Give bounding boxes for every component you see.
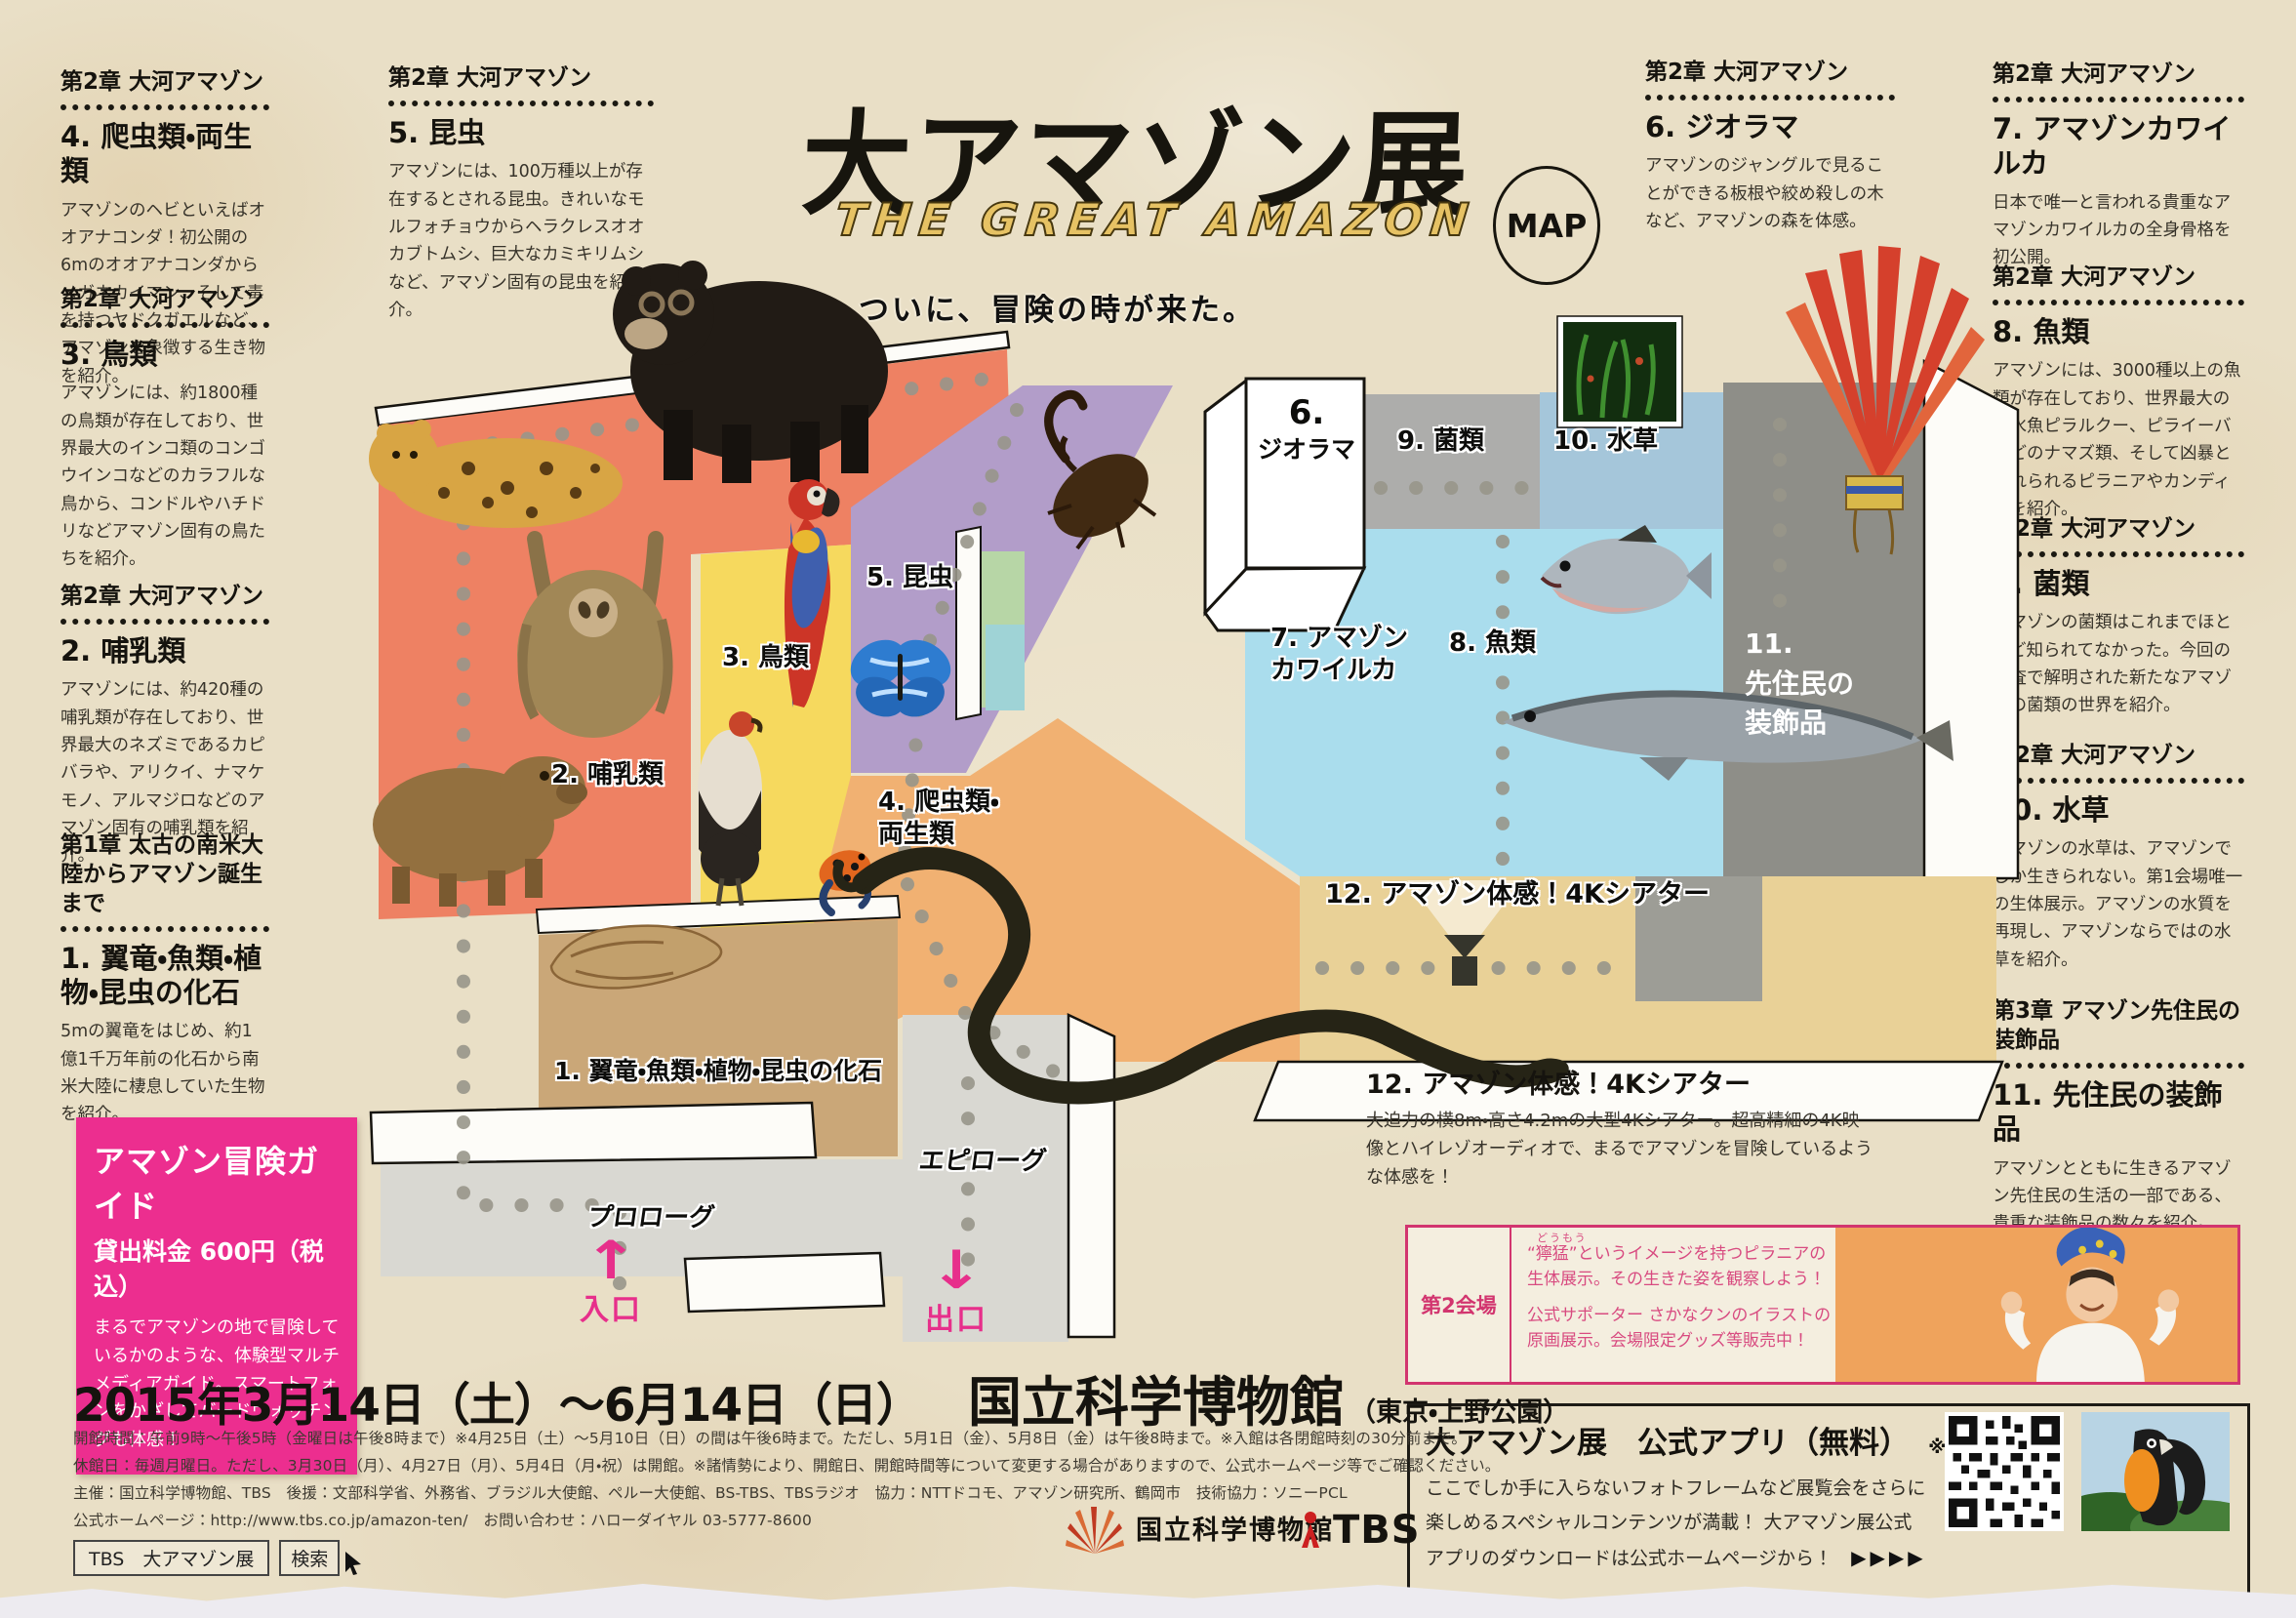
section-heading: 5. 昆虫: [388, 116, 654, 150]
app-body: ここでしか手に入らないフォトフレームなど展覧会をさらに 楽しめるスペシャルコンテ…: [1426, 1472, 1953, 1576]
section-body: アマゾンには、3000種以上の魚類が存在しており、世界最大の淡水魚ピラルクー、ピ…: [1993, 357, 2244, 523]
section-fungi: 第2章 大河アマゾン 9. 菌類 アマゾンの菌類はこれまでほとんど知られてなかっ…: [1993, 515, 2244, 720]
section-fish: 第2章 大河アマゾン 8. 魚類 アマゾンには、3000種以上の魚類が存在してお…: [1993, 263, 2244, 523]
app-arrows-icon: ▶▶▶▶: [1851, 1546, 1927, 1569]
venue-name: 国立科学博物館: [968, 1358, 1344, 1436]
search-mock: TBS 大アマゾン展 検索: [73, 1540, 363, 1576]
map-label-reptiles: 4. 爬虫類・両生類: [878, 787, 999, 850]
section-chapter: 第2章 大河アマゾン: [1993, 61, 2244, 102]
map-label-theater: 12. アマゾン体感！4Kシアター: [1325, 878, 1710, 911]
section-chapter: 第2章 大河アマゾン: [60, 286, 269, 328]
exit-label: 出口: [925, 1295, 987, 1338]
tbs-figure-icon: [1298, 1511, 1323, 1550]
map-label-fish: 8. 魚類: [1449, 627, 1536, 660]
map-label-waterplants: 10. 水草: [1553, 425, 1658, 458]
map-label-fungi: 9. 菌類: [1397, 425, 1484, 458]
guide-title: アマゾン冒険ガイド: [94, 1137, 340, 1227]
map-label-fossils: 1. 翼竜・魚類・植物・昆虫の化石: [554, 1056, 882, 1086]
date-line: 2015年3月14日（土）〜6月14日（日） 国立科学博物館 （東京・上野公園）: [73, 1358, 1569, 1436]
map-label-dolphin: 7. アマゾンカワイルカ: [1270, 623, 1408, 686]
tbs-logo: TBS: [1298, 1508, 1421, 1553]
map-label-birds: 3. 鳥類: [722, 642, 809, 674]
flyer-page: { "header": { "title": "大アマゾン展", "subtit…: [0, 0, 2296, 1618]
section-heading: 10. 水草: [1993, 793, 2244, 828]
exhibition-subtitle: THE GREAT AMAZON: [832, 193, 1478, 246]
section-body: アマゾンには、約1800種の鳥類が存在しており、世界最大のインコ類のコンゴウイン…: [60, 380, 269, 573]
entrance-gate: ↑ 入口: [580, 1237, 642, 1328]
section-mammals: 第2章 大河アマゾン 2. 哺乳類 アマゾンには、約420種の哺乳類が存在してお…: [60, 583, 269, 870]
qr-code-icon: [1945, 1412, 2064, 1531]
tagline: ついに、冒険の時が来た。: [859, 285, 1256, 329]
kahaku-logo: 国立科学博物館: [1064, 1495, 1334, 1559]
section-chapter: 第2章 大河アマゾン: [1645, 59, 1895, 101]
map-label-epilogue: エピローグ: [917, 1146, 1049, 1178]
kahaku-rays-icon: [1064, 1495, 1126, 1559]
section-river-dolphin: 第2章 大河アマゾン 7. アマゾンカワイルカ 日本で唯一と言われる貴重なアマゾ…: [1993, 61, 2244, 272]
section-chapter: 第2章 大河アマゾン: [60, 68, 269, 110]
guide-price: 貸出料金 600円（税込）: [94, 1233, 340, 1303]
section-heading: 6. ジオラマ: [1645, 110, 1895, 144]
map-labels: 2. 哺乳類 3. 鳥類 5. 昆虫 4. 爬虫類・両生類 1. 翼竜・魚類・植…: [371, 332, 2020, 1376]
section-birds: 第2章 大河アマゾン 3. 鳥類 アマゾンには、約1800種の鳥類が存在しており…: [60, 286, 269, 574]
map-label-insects: 5. 昆虫: [866, 562, 953, 594]
website-line: 公式ホームページ：http://www.tbs.co.jp/amazon-ten…: [73, 1509, 812, 1530]
entrance-label: 入口: [580, 1285, 642, 1328]
section-diorama: 第2章 大河アマゾン 6. ジオラマ アマゾンのジャングルで見ることができる板根…: [1645, 59, 1895, 235]
section-body: 5mの翼竜をはじめ、約1億1千万年前の化石から南米大陸に棲息していた生物を紹介。: [60, 1018, 269, 1128]
tbs-logo-text: TBS: [1333, 1508, 1421, 1553]
map-label-mammals: 2. 哺乳類: [551, 759, 664, 791]
map-label-diorama: 6.ジオラマ: [1252, 392, 1361, 465]
section-heading: 11. 先住民の装飾品: [1993, 1078, 2244, 1148]
map-badge: MAP: [1493, 166, 1600, 285]
hours-line: 開館時間：午前9時〜午後5時（金曜日は午後8時まで）※4月25日（土）〜5月10…: [73, 1427, 1467, 1448]
section-fossils: 第1章 太古の南米大陸からアマゾン誕生まで 1. 翼竜・魚類・植物・昆虫の化石 …: [60, 831, 269, 1129]
section-body: アマゾンのジャングルで見ることができる板根や絞め殺しの木など、アマゾンの森を体感…: [1645, 152, 1895, 235]
section-chapter: 第2章 大河アマゾン: [1993, 742, 2244, 784]
closed-line: 休館日：毎週月曜日。ただし、3月30日（月）、4月27日（月）、5月4日（月・祝…: [73, 1454, 1500, 1476]
section-theater: 12. アマゾン体感！4Kシアター 大迫力の横8m・高さ4.2mの大型4Kシアタ…: [1366, 1070, 1913, 1192]
section-heading: 12. アマゾン体感！4Kシアター: [1366, 1070, 1913, 1102]
section-heading: 3. 鳥類: [60, 338, 269, 372]
cursor-icon: [343, 1552, 363, 1575]
sakana-kun-photo: [1835, 1228, 2237, 1382]
section-heading: 4. 爬虫類・両生類: [60, 120, 269, 189]
search-terms-box: TBS 大アマゾン展: [73, 1540, 269, 1576]
section-body: 大迫力の横8m・高さ4.2mの大型4Kシアター。超高精細の4K映像とハイレゾオー…: [1366, 1108, 1873, 1192]
section-chapter: 第2章 大河アマゾン: [1993, 263, 2244, 305]
exhibition-dates: 2015年3月14日（土）〜6月14日（日）: [73, 1367, 921, 1435]
section-insects: 第2章 大河アマゾン 5. 昆虫 アマゾンには、100万種以上が存在するとされる…: [388, 64, 654, 324]
section-chapter: 第1章 太古の南米大陸からアマゾン誕生まで: [60, 831, 269, 932]
section-ornaments: 第3章 アマゾン先住民の装飾品 11. 先住民の装飾品 アマゾンとともに生きるア…: [1993, 997, 2244, 1238]
entrance-arrow-icon: ↑: [572, 1237, 650, 1285]
section-body: 日本で唯一と言われる貴重なアマゾンカワイルカの全身骨格を初公開。: [1993, 189, 2244, 272]
section-body: アマゾンの菌類はこれまでほとんど知られてなかった。今回の調査で解明された新たなア…: [1993, 609, 2244, 719]
exit-gate: ↓ 出口: [925, 1247, 987, 1338]
section-chapter: 第2章 大河アマゾン: [1993, 515, 2244, 557]
section-water-plants: 第2章 大河アマゾン 10. 水草 アマゾンの水草は、アマゾンでしか生きられない…: [1993, 742, 2244, 974]
venue-note: （東京・上野公園）: [1349, 1391, 1569, 1429]
section-heading: 7. アマゾンカワイルカ: [1993, 112, 2244, 182]
section-heading: 8. 魚類: [1993, 315, 2244, 349]
section-heading: 2. 哺乳類: [60, 634, 269, 668]
map-label-ornaments: 11.先住民の装飾品: [1745, 625, 1854, 744]
exit-arrow-icon: ↓: [917, 1247, 995, 1295]
section-chapter: 第3章 アマゾン先住民の装飾品: [1993, 997, 2244, 1069]
section-chapter: 第2章 大河アマゾン: [388, 64, 654, 106]
section-heading: 1. 翼竜・魚類・植物・昆虫の化石: [60, 942, 269, 1011]
section-chapter: 第2章 大河アマゾン: [60, 583, 269, 625]
section-body: アマゾンの水草は、アマゾンでしか生きられない。第1会場唯一の生体展示。アマゾンの…: [1993, 835, 2244, 974]
section-heading: 9. 菌類: [1993, 567, 2244, 601]
section-body: アマゾンには、100万種以上が存在するとされる昆虫。きれいなモルフォチョウからヘ…: [388, 158, 654, 324]
venue2-furigana: どうもう: [1537, 1230, 1588, 1246]
search-button: 検索: [279, 1540, 340, 1576]
toucan-photo: [2081, 1412, 2230, 1531]
